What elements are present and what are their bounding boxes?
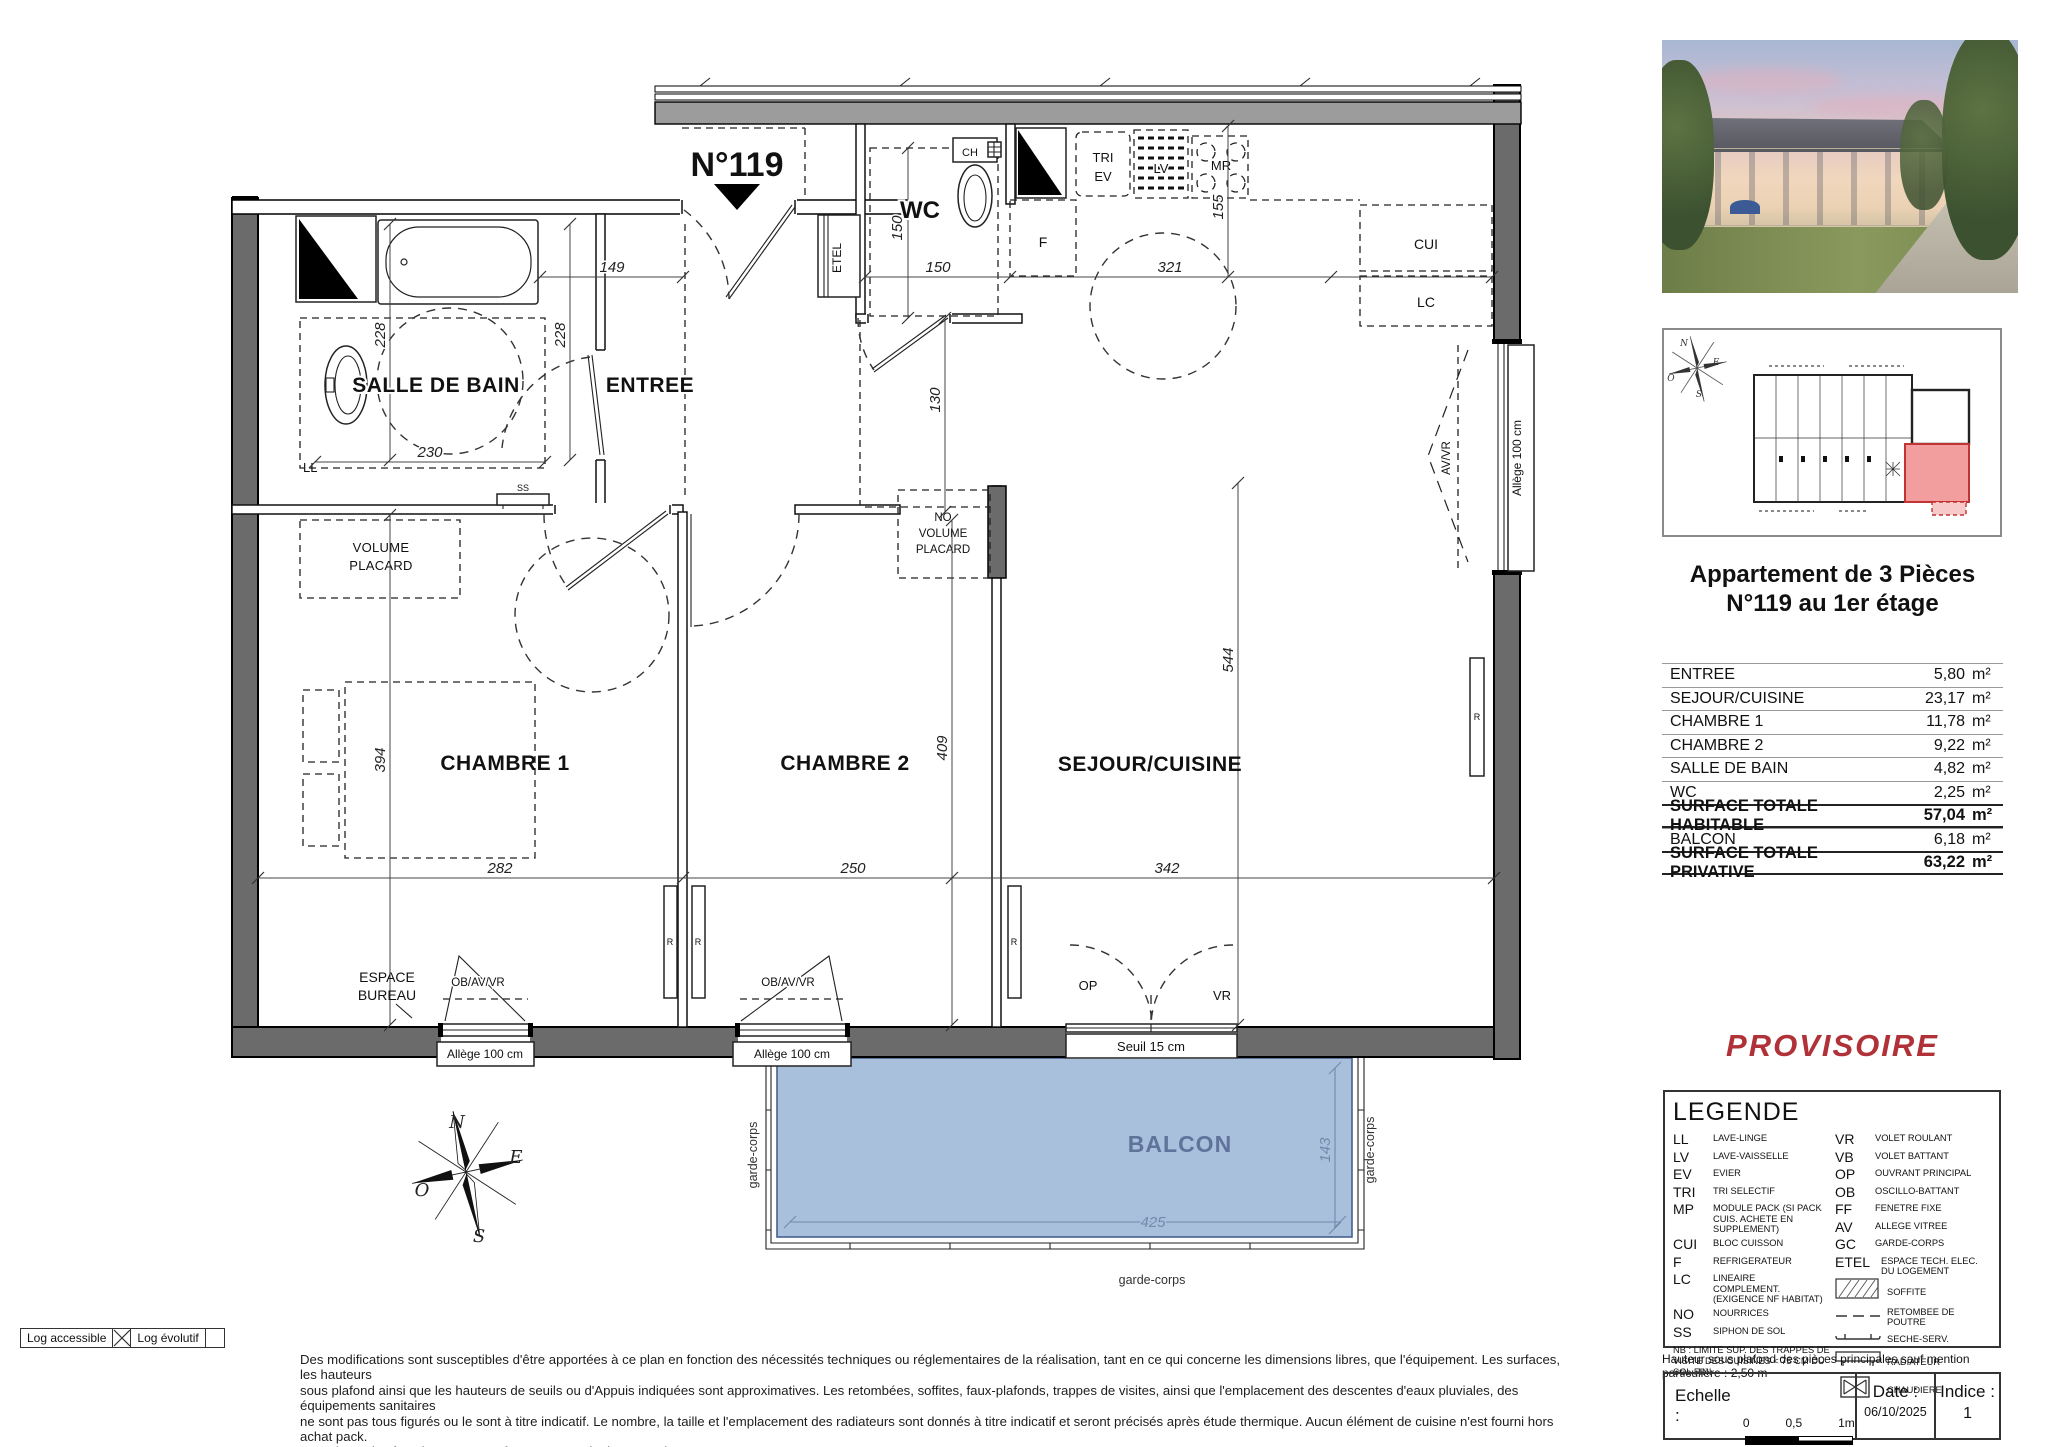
legend-item: SSSIPHON DE SOL [1673,1324,1831,1340]
legend-item: VRVOLET ROULANT [1835,1131,1991,1147]
row-label: CHAMBRE 1 [1670,713,1893,731]
site-highlighted-unit [1905,444,1969,515]
radiator-r-4: R [1474,712,1481,722]
ch-label: CH [962,147,978,159]
doors [502,205,1233,1027]
corridor-wall-bands [655,78,1521,124]
obavvr-label-2: OB/AV/VR [761,977,814,989]
log-accessible-checkbox [113,1329,131,1347]
dim-143: 143 [1317,1137,1334,1163]
legend-label: RETOMBEE DE POUTRE [1887,1307,1991,1327]
disclaimer-text: Des modifications sont susceptibles d'êt… [300,1352,1575,1447]
legend-label: VOLET BATTANT [1875,1149,1949,1165]
room-label-chambre1: CHAMBRE 1 [440,752,569,775]
row-value: 63,22 [1893,853,1965,872]
legend-label: ESPACE TECH. ELEC. DU LOGEMENT [1881,1254,1989,1277]
sdb-door-swing [502,357,590,448]
room-label-chambre2: CHAMBRE 2 [780,752,909,775]
legend-label: SIPHON DE SOL [1713,1324,1785,1340]
no-volume-line3: PLACARD [916,544,970,556]
legend-item: LVLAVE-VAISSELLE [1673,1149,1831,1165]
legend-item: GCGARDE-CORPS [1835,1236,1991,1252]
scale-tick-0: 0 [1743,1416,1750,1430]
table-row-total-privative: SURFACE TOTALE PRIVATIVE63,22m² [1662,851,2003,875]
echelle-label: Echelle : [1675,1386,1737,1426]
allege-label-2: Allège 100 cm [754,1047,830,1061]
legend-item: EVEVIER [1673,1166,1831,1182]
legend-abbr: VB [1835,1149,1875,1165]
balcony: BALCON 425 143 [766,1058,1364,1249]
vr-label: VR [1213,988,1231,1003]
legend-item: ETELESPACE TECH. ELEC. DU LOGEMENT [1835,1254,1991,1277]
dim-228-b: 228 [552,322,569,349]
date-section: Date : 06/10/2025 [1855,1374,1934,1438]
radiators: R R R R [664,658,1484,998]
legend-symbol-row: RETOMBEE DE POUTRE [1835,1307,1991,1327]
dim-425: 425 [1140,1214,1166,1231]
row-unit: m² [1965,806,1999,825]
legend-title: LEGENDE [1673,1098,1991,1127]
lv-label: LV [1154,161,1169,176]
no-volume-placard: NO VOLUME PLACARD [898,490,990,578]
entrance-door-leaf [726,205,795,299]
legend-abbr: F [1673,1254,1713,1270]
retombee-line-icon [1835,1308,1887,1326]
lave-vaisselle: LV [1134,130,1188,198]
dim-250: 250 [839,860,866,877]
legend-label: OSCILLO-BATTANT [1875,1184,1959,1200]
disclaimer-line2: sous plafond ainsi que les hauteurs de s… [300,1383,1575,1414]
desk-tick [396,1004,412,1018]
scale-tick-1m: 1m [1838,1416,1855,1430]
table-row: SEJOUR/CUISINE23,17m² [1662,687,2003,711]
dim-282: 282 [486,860,513,877]
log-evolutif-checkbox [206,1329,224,1347]
window-sejour-right: Allège 100 cm AV/VR [1428,339,1534,575]
bathtub [378,220,538,304]
legend-label: GARDE-CORPS [1875,1236,1944,1252]
etel-closet: ETEL [818,215,860,297]
legend-label: MODULE PACK (SI PACK CUIS. ACHETE EN SUP… [1713,1201,1823,1235]
legend-abbr: GC [1835,1236,1875,1252]
compass-s: S [473,1226,485,1247]
legend-abbr: LC [1673,1271,1713,1305]
legend-item: MPMODULE PACK (SI PACK CUIS. ACHETE EN S… [1673,1201,1831,1235]
legend-label: NOURRICES [1713,1306,1769,1322]
dim-130: 130 [927,387,944,413]
row-value: 9,22 [1893,737,1965,755]
table-row: ENTREE5,80m² [1662,663,2003,687]
obavvr-label-1: OB/AV/VR [451,977,504,989]
row-value: 4,82 [1893,760,1965,778]
row-unit: m² [1965,713,1999,731]
chambre2-door-swing [693,514,799,626]
legend-label: SECHE-SERV. [1887,1334,1949,1344]
row-unit: m² [1965,784,1999,802]
soffite-swatch-icon [1835,1278,1887,1305]
compass-o: O [415,1180,430,1201]
radiator-r-3: R [1011,937,1018,947]
legend-symbol-row: SOFFITE [1835,1278,1991,1305]
legend-abbr: OB [1835,1184,1875,1200]
avvr-label: AV/VR [1441,441,1453,475]
legend-abbr: NO [1673,1306,1713,1322]
legend-item: LCLINEAIRE COMPLEMENT. (EXIGENCE NF HABI… [1673,1271,1831,1305]
legend-label: LAVE-LINGE [1713,1131,1767,1147]
chambre1-door-leaf [566,511,668,590]
espace-bureau-line2: BUREAU [358,987,416,1003]
indice-value: 1 [1936,1405,1999,1423]
legend-item: LLLAVE-LINGE [1673,1131,1831,1147]
volume-placard-line1: VOLUME [353,540,410,555]
seuil-label: Seuil 15 cm [1117,1039,1185,1054]
espace-bureau-line1: ESPACE [359,969,415,985]
legend-abbr: MP [1673,1201,1713,1235]
legend-abbr: OP [1835,1166,1875,1182]
ev-label: EV [1094,169,1112,184]
date-label: Date : [1857,1382,1934,1402]
cloud [1692,68,1842,94]
lc-label: LC [1417,294,1435,310]
legend-abbr: LV [1673,1149,1713,1165]
window-chambre1: Allège 100 cm OB/AV/VR [437,956,534,1066]
legend-label: OUVRANT PRINCIPAL [1875,1166,1971,1182]
log-accessible-label: Log accessible [21,1329,113,1347]
entrance-door-swing [684,210,729,299]
kitchen-equipment: TRI EV LV MR F CUI LC [1010,130,1492,326]
logement-type-box: Log accessible Log évolutif [20,1328,225,1348]
tri-label: TRI [1093,150,1114,165]
row-unit: m² [1965,737,1999,755]
photo-tree-right [1942,40,2018,260]
provisoire-stamp: PROVISOIRE [1662,1028,2003,1064]
row-unit: m² [1965,760,1999,778]
title-line1: Appartement de 3 Pièces [1662,560,2003,589]
dim-230: 230 [416,444,443,461]
indice-section: Indice : 1 [1934,1374,1999,1438]
dim-544: 544 [1220,647,1237,672]
disclaimer-line3: ne sont pas tous figurés ou le sont à ti… [300,1414,1575,1445]
surface-table: ENTREE5,80m² SEJOUR/CUISINE23,17m² CHAMB… [1662,663,2003,875]
site-compass-e: E [1712,358,1720,368]
compass-n: N [448,1112,466,1133]
row-label: ENTREE [1670,666,1893,684]
legend-abbr: LL [1673,1131,1713,1147]
row-value: 6,18 [1893,831,1965,849]
compass-rose: N E O S [399,1099,536,1248]
legend-item: NONOURRICES [1673,1306,1831,1322]
chambre1-door-swing [544,514,568,588]
allege-label-1: Allège 100 cm [447,1047,523,1061]
op-label: OP [1079,978,1098,993]
x-mark-icon [113,1329,131,1347]
row-label: SALLE DE BAIN [1670,760,1893,778]
legend-abbr: AV [1835,1219,1875,1235]
dim-149: 149 [599,259,625,276]
garde-corps-label-right: garde-corps [1363,1117,1377,1184]
radiator-r-2: R [695,937,702,947]
title-block: Echelle : 0 0,5 1m Date : 06/10/2025 Ind… [1663,1372,2001,1440]
row-unit: m² [1965,831,1999,849]
legend-label: SOFFITE [1887,1287,1926,1297]
no-volume-line2: VOLUME [919,528,968,540]
legend-label: EVIER [1713,1166,1741,1182]
legend-label: ALLEGE VITREE [1875,1219,1947,1235]
seche-serviette-icon [1835,1329,1887,1348]
unit-number-label: N°119 [690,146,783,184]
legend-item: CUIBLOC CUISSON [1673,1236,1831,1252]
legend-label: TRI SELECTIF [1713,1184,1775,1200]
table-row: CHAMBRE 29,22m² [1662,734,2003,758]
room-label-sejour: SEJOUR/CUISINE [1058,753,1242,776]
legend-abbr: ETEL [1835,1254,1881,1277]
dim-409: 409 [934,735,951,761]
indice-label: Indice : [1936,1382,1999,1402]
site-compass-n: N [1679,339,1689,349]
log-evolutif-label: Log évolutif [131,1329,205,1347]
scale-section: Echelle : 0 0,5 1m [1665,1374,1855,1438]
legend-label: VOLET ROULANT [1875,1131,1952,1147]
legend-abbr: VR [1835,1131,1875,1147]
radiator-r-1: R [667,937,674,947]
legend-item: TRITRI SELECTIF [1673,1184,1831,1200]
row-label: SURFACE TOTALE PRIVATIVE [1670,844,1893,882]
etel-label: ETEL [830,243,844,273]
legend-label: FENETRE FIXE [1875,1201,1942,1217]
row-unit: m² [1965,853,1999,872]
dim-155: 155 [1210,194,1227,220]
room-label-wc: WC [900,197,940,224]
building-photo [1662,40,2018,293]
legend-abbr: EV [1673,1166,1713,1182]
soffite-wedge-wc [1016,128,1066,198]
soffite-wedge-sdb [296,216,376,302]
f-label: F [1039,234,1048,250]
scale-tick-05: 0,5 [1785,1416,1802,1430]
legend-item: VBVOLET BATTANT [1835,1149,1991,1165]
apartment-title: Appartement de 3 Pièces N°119 au 1er éta… [1662,560,2003,618]
row-value: 57,04 [1893,806,1965,825]
floor-plan-sheet: { "colors": { "wall_gray": "#6b6b6b", "b… [0,0,2048,1447]
site-compass-s: S [1696,390,1702,400]
legend-abbr: TRI [1673,1184,1713,1200]
legend-item: FREFRIGERATEUR [1673,1254,1831,1270]
table-row: CHAMBRE 111,78m² [1662,710,2003,734]
row-label: SEJOUR/CUISINE [1670,690,1893,708]
legend-item: OBOSCILLO-BATTANT [1835,1184,1991,1200]
volume-placard: VOLUME PLACARD [300,520,460,598]
site-compass-o: O [1667,374,1675,384]
dim-321: 321 [1157,259,1182,276]
legend-label: LAVE-VAISSELLE [1713,1149,1789,1165]
row-unit: m² [1965,690,1999,708]
row-value: 23,17 [1893,690,1965,708]
legend-label: LINEAIRE COMPLEMENT. (EXIGENCE NF HABITA… [1713,1271,1823,1305]
garde-corps-label-left: garde-corps [746,1122,760,1189]
table-row: SALLE DE BAIN4,82m² [1662,757,2003,781]
photo-tree-small [1900,100,1948,210]
window-chambre2: Allège 100 cm OB/AV/VR [733,956,851,1066]
seche-serviette: SS [497,483,549,509]
row-value: 5,80 [1893,666,1965,684]
disclaimer-line1: Des modifications sont susceptibles d'êt… [300,1352,1575,1383]
row-label: CHAMBRE 2 [1670,737,1893,755]
allege-label-3: Allège 100 cm [1510,420,1524,496]
wall-stub [988,486,1006,578]
legend-abbr: CUI [1673,1236,1713,1252]
legend-label: BLOC CUISSON [1713,1236,1783,1252]
scale-segment-black [1746,1437,1799,1444]
legend-label: REFRIGERATEUR [1713,1254,1792,1270]
apartment-top-wall [232,198,908,216]
row-label: SURFACE TOTALE HABITABLE [1670,797,1893,835]
site-plan: N E O S [1662,328,2002,537]
dim-342: 342 [1154,860,1180,877]
legend-item: OPOUVRANT PRINCIPAL [1835,1166,1991,1182]
ss-label: SS [517,483,529,493]
legend-item: FFFENETRE FIXE [1835,1201,1991,1217]
room-label-salle-de-bain: SALLE DE BAIN [352,374,520,397]
garde-corps-label-bottom: garde-corps [1119,1273,1186,1287]
dim-394: 394 [372,747,389,772]
title-line2: N°119 au 1er étage [1662,589,2003,618]
legend-item: AVALLEGE VITREE [1835,1219,1991,1235]
cui-label: CUI [1414,236,1438,252]
photo-umbrella [1730,200,1760,214]
cooktop: MR [1192,136,1248,198]
dim-150-wc-w: 150 [925,259,951,276]
room-label-entree: ENTREE [606,374,694,397]
legend-symbol-row: SECHE-SERV. [1835,1329,1991,1348]
table-row-total-habitable: SURFACE TOTALE HABITABLE57,04m² [1662,804,2003,828]
row-value: 11,78 [1893,713,1965,731]
compass-e: E [508,1147,522,1168]
row-unit: m² [1965,666,1999,684]
volume-placard-line2: PLACARD [349,558,413,573]
date-value: 06/10/2025 [1857,1405,1934,1419]
room-label-balcon: BALCON [1128,1131,1232,1157]
dim-228-a: 228 [372,322,389,349]
legend-abbr: FF [1835,1201,1875,1217]
row-value: 2,25 [1893,784,1965,802]
legend-abbr: SS [1673,1324,1713,1340]
scale-segment-split [1799,1437,1852,1444]
legend: LEGENDE LLLAVE-LINGE LVLAVE-VAISSELLE EV… [1663,1090,2001,1348]
